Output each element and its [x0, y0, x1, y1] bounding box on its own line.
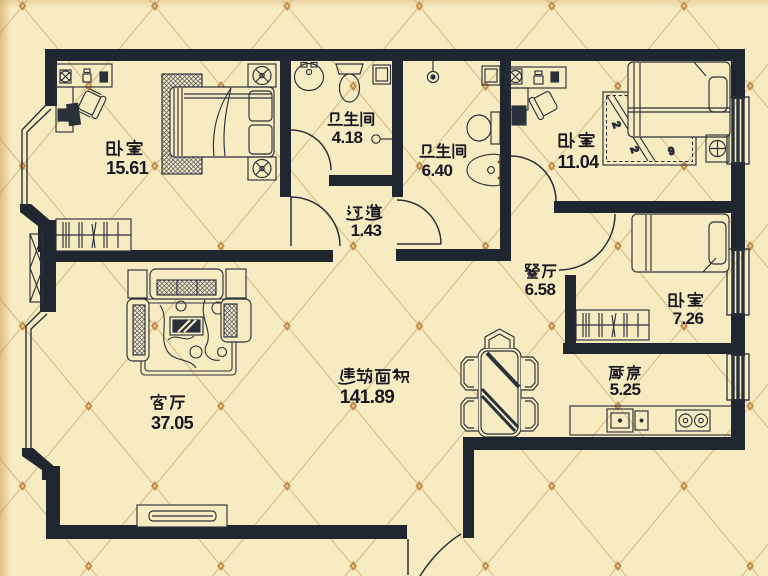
svg-text:37.05: 37.05 — [151, 413, 194, 433]
svg-text:6.40: 6.40 — [422, 161, 453, 180]
svg-text:6.58: 6.58 — [525, 280, 556, 299]
svg-text:15.61: 15.61 — [106, 158, 149, 178]
svg-text:5.25: 5.25 — [610, 380, 641, 399]
svg-text:141.89: 141.89 — [340, 387, 395, 408]
svg-text:1.43: 1.43 — [351, 221, 382, 240]
svg-text:11.04: 11.04 — [557, 152, 599, 172]
svg-text:7.26: 7.26 — [673, 309, 704, 328]
svg-text:4.18: 4.18 — [332, 128, 363, 147]
